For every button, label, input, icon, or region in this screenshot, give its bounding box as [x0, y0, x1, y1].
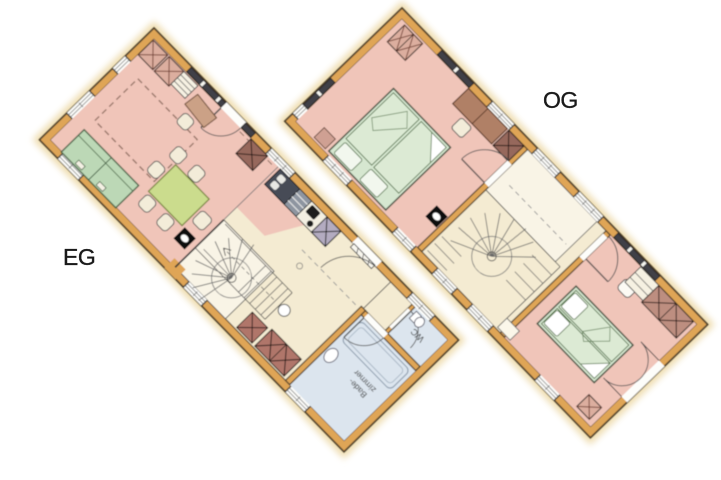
- svg-text:OG: OG: [543, 87, 578, 113]
- svg-text:EG: EG: [63, 244, 95, 270]
